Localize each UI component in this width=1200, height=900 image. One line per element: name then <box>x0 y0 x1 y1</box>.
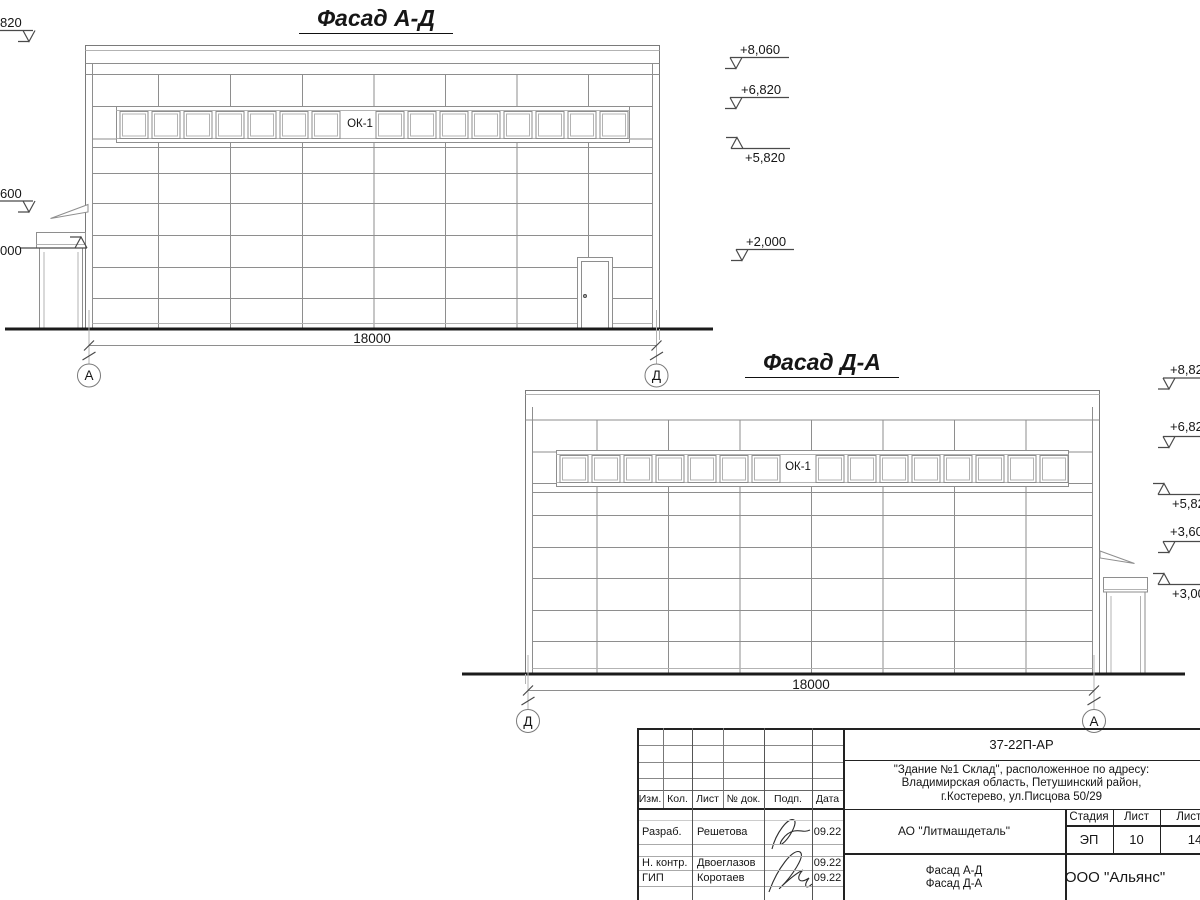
sheet-title: Фасад А-Д Фасад Д-А <box>843 853 1065 900</box>
elevation-mark: +8,060 <box>740 42 780 57</box>
col-data: Дата <box>812 790 843 808</box>
elevation-mark: 000 <box>0 243 22 258</box>
name-gip: Коротаев <box>692 870 769 886</box>
col-izm: Изм. <box>637 790 663 808</box>
dimension-18000: 18000 <box>332 331 412 345</box>
elevation-mark: +8,820 <box>1170 362 1200 377</box>
sheets-total-value: 14 <box>1160 825 1200 853</box>
window-type-label: ОК-1 <box>776 460 820 473</box>
col-podp: Подп. <box>764 790 812 808</box>
window-type-label: ОК-1 <box>338 117 382 130</box>
door <box>578 258 613 329</box>
canopy <box>1100 551 1135 564</box>
sheet-label: Лист <box>1113 809 1160 825</box>
name-nkontr: Двоеглазов <box>692 856 769 870</box>
elevation-mark: +6,820 <box>1170 419 1200 434</box>
col-list: Лист <box>692 790 723 808</box>
elevation-mark: +6,820 <box>741 82 781 97</box>
date-nkontr: 09.22 <box>812 856 843 870</box>
axis-letter-d: Д <box>645 364 668 387</box>
annex <box>37 233 86 329</box>
facade-da-title: Фасад Д-А <box>745 349 899 378</box>
date-razrab: 09.22 <box>812 820 843 844</box>
stage-value: ЭП <box>1065 825 1113 853</box>
name-razrab: Решетова <box>692 820 769 844</box>
role-razrab: Разраб. <box>637 820 697 844</box>
canopy <box>51 205 89 219</box>
sheets-total-label: Листов <box>1160 809 1200 825</box>
company-name: ООО "Альянс" <box>1053 866 1177 888</box>
project-address: "Здание №1 Склад", расположенное по адре… <box>843 761 1200 807</box>
date-gip: 09.22 <box>812 870 843 886</box>
stage-label: Стадия <box>1065 809 1113 825</box>
client-name: АО "Литмашдеталь" <box>843 809 1065 853</box>
facade-ad-title: Фасад А-Д <box>299 5 453 34</box>
elevation-mark: +3,600 <box>1170 524 1200 539</box>
elevation-mark: +5,820 <box>1172 496 1200 511</box>
doc-number: 37-22П-АР <box>843 730 1200 758</box>
annex <box>1104 578 1148 674</box>
elevation-mark: +5,820 <box>745 150 785 165</box>
elevation-mark: 600 <box>0 186 22 201</box>
axis-letter-a: А <box>78 364 101 387</box>
axis-letter-d: Д <box>517 710 540 733</box>
drawing-sheet: Фасад А-Д ОК-1 18000 А Д 820 600 000 +8,… <box>0 0 1200 900</box>
elevation-mark: 820 <box>0 15 22 30</box>
col-kol: Кол. <box>663 790 692 808</box>
title-block: Изм. Кол. Лист № док. Подп. Дата Разраб.… <box>637 728 1200 900</box>
elevation-mark: +2,000 <box>746 234 786 249</box>
col-ndok: № док. <box>723 790 764 808</box>
sheet-value: 10 <box>1113 825 1160 853</box>
elevation-mark: +3,000 <box>1172 586 1200 601</box>
role-gip: ГИП <box>637 870 697 886</box>
dimension-18000: 18000 <box>771 677 851 691</box>
role-nkontr: Н. контр. <box>637 856 697 870</box>
